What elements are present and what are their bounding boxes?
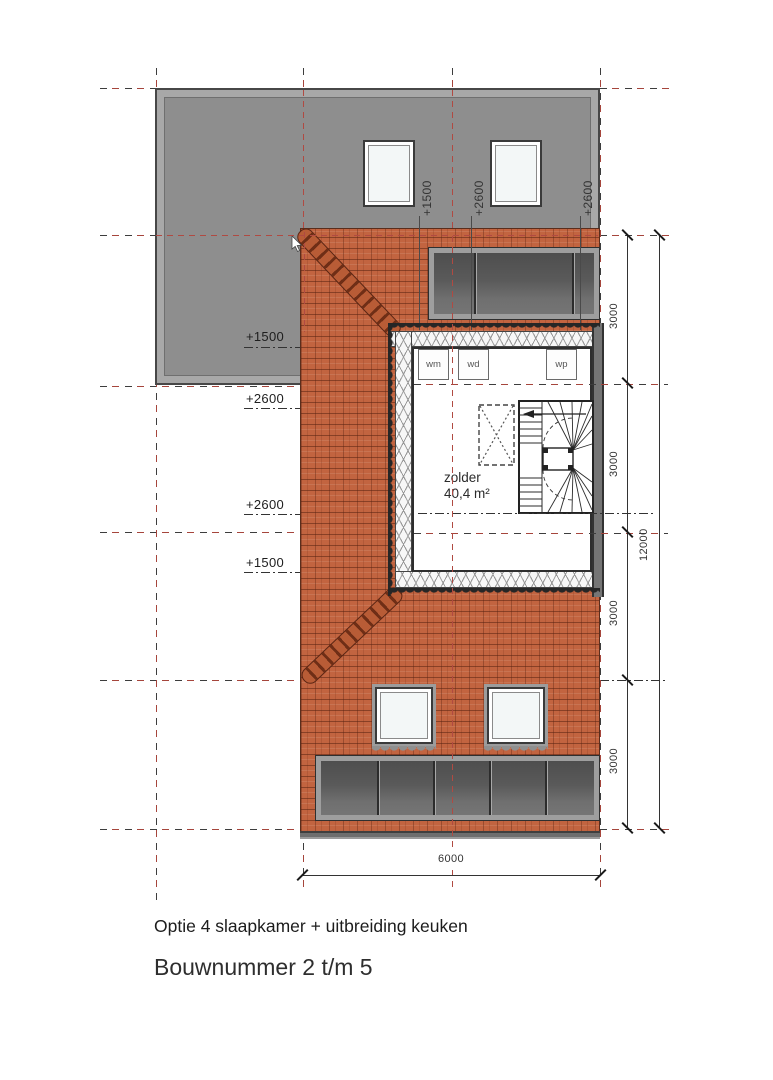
roof-window-2 xyxy=(490,140,542,207)
roof-void-marker xyxy=(478,404,515,466)
dim-label-3000-3: 3000 xyxy=(608,586,620,626)
dim-line-outer xyxy=(659,235,660,828)
appliance-wm-label: wm xyxy=(426,359,441,370)
level-line-3 xyxy=(244,514,300,515)
grid-line-h-6 xyxy=(100,829,300,830)
roof-window-3 xyxy=(375,687,433,744)
grid-line-h-3 xyxy=(100,386,300,387)
tile-edge-top xyxy=(390,323,600,332)
grid-red-v-452-lower xyxy=(452,236,453,848)
plan-title: Bouwnummer 2 t/m 5 xyxy=(154,954,373,981)
wall-insulation-bottom xyxy=(395,571,600,588)
appliance-wm: wm xyxy=(418,349,449,380)
room-name: zolder xyxy=(444,470,490,486)
option-description: Optie 4 slaapkamer + uitbreiding keuken xyxy=(154,916,468,937)
leader-line-3 xyxy=(580,216,581,330)
dim-label-3000-1: 3000 xyxy=(608,289,620,329)
leader-line-1 xyxy=(419,216,420,330)
tile-edge-left xyxy=(388,323,396,596)
appliance-wd: wd xyxy=(458,349,489,380)
level-label-2: +2600 xyxy=(246,391,284,406)
grid-line-h-2 xyxy=(100,235,155,236)
dormer-top-glass xyxy=(434,253,594,314)
wall-insulation-top xyxy=(390,331,600,347)
mouse-cursor-icon xyxy=(291,236,303,253)
dim-label-6000: 6000 xyxy=(432,853,470,865)
dim-label-3000-2: 3000 xyxy=(608,437,620,477)
wall-insulation-left xyxy=(395,331,412,590)
roof-level-label-2: +2600 xyxy=(472,166,486,216)
grid-line-h-4 xyxy=(100,532,300,533)
floor-plan-canvas: +1500 +2600 +2600 wm wd wp xyxy=(0,0,773,1080)
room-label: zolder 40,4 m² xyxy=(444,470,490,502)
roof-window-1 xyxy=(363,140,415,207)
grid-red-v-303 xyxy=(303,90,304,230)
dim-label-3000-4: 3000 xyxy=(608,734,620,774)
level-line-1 xyxy=(244,347,300,348)
tile-edge-bottom xyxy=(390,588,600,597)
ext-line-h-680-right xyxy=(600,680,665,681)
dormer-top-mullion-2 xyxy=(572,253,574,314)
dormer-top-mullion-1 xyxy=(474,253,476,314)
level-line-2 xyxy=(244,408,300,409)
dim-label-12000: 12000 xyxy=(638,505,650,561)
eave-edge xyxy=(300,831,600,839)
grid-red-v-452-below xyxy=(452,870,453,888)
appliance-wd-label: wd xyxy=(467,359,479,370)
dormer-bottom-mullion-3 xyxy=(489,761,491,815)
grid-red-h-235 xyxy=(156,235,598,236)
dormer-bottom-mullion-1 xyxy=(377,761,379,815)
grid-red-v-304-tiles xyxy=(304,232,305,332)
roof-level-label-3: +2600 xyxy=(581,166,595,216)
roof-level-label-1: +1500 xyxy=(420,166,434,216)
level-label-3: +2600 xyxy=(246,497,284,512)
ref-line-h-513 xyxy=(418,513,655,514)
appliance-wp-label: wp xyxy=(555,359,567,370)
grid-line-h-5 xyxy=(100,680,300,681)
leader-line-2 xyxy=(471,216,472,330)
staircase xyxy=(518,400,594,514)
level-label-4: +1500 xyxy=(246,555,284,570)
roof-window-4 xyxy=(487,687,545,744)
dormer-bottom-mullion-2 xyxy=(433,761,435,815)
dormer-bottom-mullion-4 xyxy=(545,761,547,815)
dormer-bottom-glass xyxy=(321,761,594,815)
level-line-4 xyxy=(244,572,300,573)
dim-line-bottom xyxy=(302,875,600,876)
level-label-1: +1500 xyxy=(246,329,284,344)
room-area: 40,4 m² xyxy=(444,486,490,502)
appliance-wp: wp xyxy=(546,349,577,380)
grid-red-v-452-roof xyxy=(452,90,453,236)
